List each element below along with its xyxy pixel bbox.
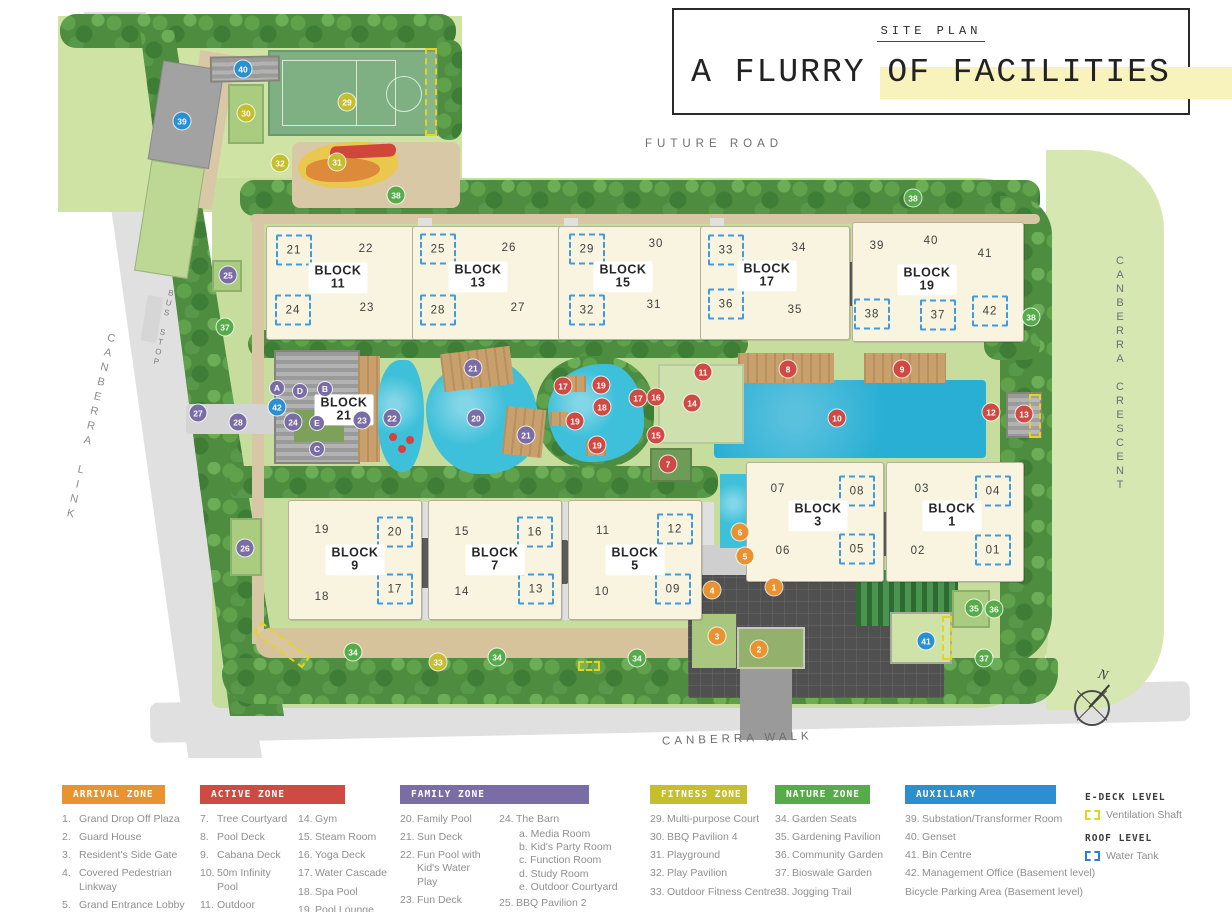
legend-item: 2.Guard House	[62, 831, 200, 844]
marker-aux-39: 39	[174, 113, 191, 130]
legend-item: 7.Tree Courtyard	[200, 813, 292, 826]
block-number: 9	[332, 560, 379, 573]
marker-nature-34: 34	[489, 649, 506, 666]
legend-item: 1.Grand Drop Off Plaza	[62, 813, 200, 826]
legend-zone: FAMILY ZONE20.Family Pool21.Sun Deck22.F…	[400, 785, 652, 912]
legend-item: 14.Gym	[298, 813, 412, 826]
unit-number: 22	[359, 243, 374, 255]
legend-item: 17.Water Cascade	[298, 867, 412, 880]
legend-item: 25.BBQ Pavilion 2	[499, 897, 652, 910]
marker-family-22: 22	[384, 410, 401, 427]
legend-item: 42.Management Office (Basement level)	[905, 867, 1110, 880]
marker-aux-41: 41	[918, 633, 935, 650]
water-tank-label: Water Tank	[1106, 850, 1159, 862]
marker-nature-38: 38	[388, 187, 405, 204]
marker-family-28: 28	[230, 414, 247, 431]
unit-number: 11	[596, 525, 610, 537]
ventilation-shaft-bin-centre	[942, 616, 952, 660]
legend-zone: ARRIVAL ZONE1.Grand Drop Off Plaza2.Guar…	[62, 785, 200, 912]
legend-item: 32.Play Pavilion	[650, 867, 778, 880]
block-number: 19	[904, 280, 951, 293]
block-number: 11	[315, 278, 362, 291]
legend-subitem: b. Kid's Party Room	[499, 841, 652, 854]
block-number: 17	[744, 276, 791, 289]
legend-levels: E-DECK LEVEL Ventilation Shaft ROOF LEVE…	[1085, 792, 1182, 874]
legend-item: 11.Outdoor Shower	[200, 899, 292, 912]
block-number: 5	[612, 560, 659, 573]
legend-item: 20.Family Pool	[400, 813, 493, 826]
legend-item: Bicycle Parking Area (Basement level)	[905, 886, 1110, 899]
legend-zone: ACTIVE ZONE7.Tree Courtyard8.Pool Deck9.…	[200, 785, 412, 912]
unit-number-water-tank: 20	[377, 517, 413, 548]
marker-arrival-5: 5	[737, 548, 754, 565]
unit-number: 30	[649, 238, 664, 250]
block-label: BLOCK13	[449, 261, 508, 292]
unit-number-water-tank: 09	[655, 574, 691, 605]
legend-item: 9.Cabana Deck	[200, 849, 292, 862]
legend-item: 33.Outdoor Fitness Centre	[650, 886, 778, 899]
legend-zone: NATURE ZONE34.Garden Seats35.Gardening P…	[775, 785, 897, 904]
unit-number-water-tank: 28	[420, 295, 456, 326]
canberra-crescent-label: CANBERRA CRESCENT	[1114, 255, 1126, 485]
marker-family-20: 20	[468, 410, 485, 427]
legend-item: 19.Pool Lounge	[298, 904, 412, 912]
block-number: 15	[600, 277, 647, 290]
block-label: BLOCK7	[466, 544, 525, 575]
block-number: 7	[472, 560, 519, 573]
unit-number: 07	[771, 483, 786, 495]
marker-active-16: 16	[648, 389, 665, 406]
marker-active-17: 17	[630, 390, 647, 407]
marker-active-13: 13	[1016, 406, 1033, 423]
unit-number-water-tank: 32	[569, 295, 605, 326]
marker-active-17: 17	[555, 378, 572, 395]
legend-zone-header: ARRIVAL ZONE	[62, 785, 165, 804]
unit-number: 31	[647, 299, 662, 311]
legend-item: 24.The Barn	[499, 813, 652, 826]
unit-number: 27	[511, 302, 526, 314]
legend-item: 10.50m Infinity Pool	[200, 867, 292, 893]
block-number: 1	[929, 516, 976, 529]
unit-number: 41	[978, 248, 993, 260]
marker-nature-37: 37	[976, 650, 993, 667]
compass: N	[1072, 684, 1112, 724]
unit-number: 34	[792, 242, 807, 254]
legend-subitem: d. Study Room	[499, 868, 652, 881]
unit-number-water-tank: 21	[276, 235, 312, 266]
unit-number: 39	[870, 240, 885, 252]
marker-nature-38: 38	[905, 190, 922, 207]
marker-arrival-4: 4	[704, 582, 721, 599]
legend-item: 30.BBQ Pavilion 4	[650, 831, 778, 844]
spa-deck-2	[550, 412, 568, 426]
unit-number-water-tank: 29	[569, 234, 605, 265]
flower-float-1	[389, 433, 397, 441]
marker-active-8: 8	[780, 361, 797, 378]
legend-zone-header: ACTIVE ZONE	[200, 785, 345, 804]
legend-subitem: a. Media Room	[499, 828, 652, 841]
unit-number-water-tank: 17	[377, 574, 413, 605]
marker-family-25: 25	[220, 267, 237, 284]
marker-family-24: 24	[285, 414, 302, 431]
marker-nature-37: 37	[217, 319, 234, 336]
unit-number: 03	[915, 483, 930, 495]
legend-item: 16.Yoga Deck	[298, 849, 412, 862]
legend-zone-header: AUXILLARY	[905, 785, 1056, 804]
legend-zone: AUXILLARY39.Substation/Transformer Room4…	[905, 785, 1110, 904]
marker-active-18: 18	[594, 399, 611, 416]
unit-number: 23	[360, 302, 375, 314]
legend-item: 36.Community Garden	[775, 849, 897, 862]
page-title: A FLURRY OF FACILITIES	[674, 54, 1188, 91]
legend-zone: FITNESS ZONE29.Multi-purpose Court30.BBQ…	[650, 785, 778, 904]
barn-room-marker-D: D	[293, 384, 307, 398]
marker-fitness-31: 31	[329, 154, 346, 171]
legend-item: 4.Covered Pedestrian Linkway	[62, 867, 200, 893]
legend-item: 39.Substation/Transformer Room	[905, 813, 1110, 826]
title-box: SITE PLAN A FLURRY OF FACILITIES	[672, 8, 1190, 115]
block-label: BLOCK5	[606, 544, 665, 575]
block-label: BLOCK19	[898, 264, 957, 295]
marker-family-27: 27	[190, 405, 207, 422]
legend-item: 35.Gardening Pavilion	[775, 831, 897, 844]
compass-ring	[1074, 690, 1110, 726]
unit-number-water-tank: 37	[920, 300, 956, 331]
legend-zone-header: NATURE ZONE	[775, 785, 870, 804]
marker-active-19: 19	[589, 437, 606, 454]
marker-nature-38: 38	[1023, 309, 1040, 326]
marker-fitness-32: 32	[272, 155, 289, 172]
marker-nature-34: 34	[345, 644, 362, 661]
marker-active-14: 14	[684, 395, 701, 412]
block-label: BLOCK15	[594, 261, 653, 292]
unit-number-water-tank: 16	[517, 517, 553, 548]
ventilation-shaft-swatch	[1085, 810, 1100, 820]
legend-item: 31.Playground	[650, 849, 778, 862]
marker-nature-35: 35	[966, 600, 983, 617]
block-label: BLOCK1	[923, 500, 982, 531]
block-label: BLOCK9	[326, 544, 385, 575]
marker-nature-36: 36	[986, 601, 1003, 618]
barn-room-marker-A: A	[270, 381, 284, 395]
marker-active-19: 19	[593, 377, 610, 394]
block-label: BLOCK3	[789, 500, 848, 531]
block-number: 3	[795, 516, 842, 529]
site-plan-eyebrow: SITE PLAN	[674, 24, 1188, 38]
marker-arrival-2: 2	[751, 641, 768, 658]
legend-subitem: c. Function Room	[499, 854, 652, 867]
site-plan-page: BLOCK1121222423BLOCK1325262827BLOCK15293…	[0, 0, 1232, 912]
marker-fitness-30: 30	[238, 105, 255, 122]
legend-item: 21.Sun Deck	[400, 831, 493, 844]
marker-family-21: 21	[465, 360, 482, 377]
ventilation-shaft-court	[425, 48, 437, 136]
future-road-label: FUTURE ROAD	[645, 138, 783, 150]
marker-fitness-33: 33	[430, 654, 447, 671]
marker-active-12: 12	[983, 404, 1000, 421]
barn-room-marker-E: E	[310, 416, 324, 430]
legend-item: 34.Garden Seats	[775, 813, 897, 826]
water-tank-swatch	[1085, 851, 1100, 861]
e-deck-level-title: E-DECK LEVEL	[1085, 792, 1182, 803]
flower-float-3	[406, 436, 414, 444]
marker-arrival-1: 1	[766, 579, 783, 596]
legend-item: 3.Resident's Side Gate	[62, 849, 200, 862]
legend-item: 41.Bin Centre	[905, 849, 1110, 862]
marker-family-26: 26	[237, 540, 254, 557]
marker-active-10: 10	[829, 410, 846, 427]
unit-number-water-tank: 24	[275, 295, 311, 326]
legend-zone-header: FAMILY ZONE	[400, 785, 589, 804]
unit-number: 26	[502, 242, 517, 254]
block-label: BLOCK17	[738, 260, 797, 291]
unit-number: 40	[924, 235, 939, 247]
unit-number: 06	[776, 545, 791, 557]
legend-item: 15.Steam Room	[298, 831, 412, 844]
marker-active-15: 15	[648, 427, 665, 444]
unit-number: 35	[788, 304, 803, 316]
block-number: 13	[455, 277, 502, 290]
unit-number: 19	[315, 524, 330, 536]
block-label: BLOCK11	[309, 262, 368, 293]
legend-item: 8.Pool Deck	[200, 831, 292, 844]
unit-number: 10	[595, 586, 610, 598]
legend-item: 37.Bioswale Garden	[775, 867, 897, 880]
marker-fitness-29: 29	[339, 94, 356, 111]
unit-number: 14	[455, 586, 470, 598]
legend-subitem: e. Outdoor Courtyard	[499, 881, 652, 894]
legend: ARRIVAL ZONE1.Grand Drop Off Plaza2.Guar…	[0, 780, 1232, 912]
legend-item: 29.Multi-purpose Court	[650, 813, 778, 826]
marker-aux-42: 42	[269, 399, 286, 416]
marker-active-19: 19	[567, 413, 584, 430]
guard-house	[737, 627, 805, 669]
legend-zone-header: FITNESS ZONE	[650, 785, 747, 804]
barn-room-marker-C: C	[310, 442, 324, 456]
ventilation-shaft-label: Ventilation Shaft	[1106, 809, 1182, 821]
ventilation-shaft-south	[578, 661, 600, 671]
legend-item: 23.Fun Deck	[400, 894, 493, 907]
marker-active-9: 9	[894, 361, 911, 378]
unit-number-water-tank: 13	[518, 574, 554, 605]
marker-family-23: 23	[354, 412, 371, 429]
legend-item: 5.Grand Entrance Lobby	[62, 899, 200, 912]
marker-arrival-3: 3	[709, 628, 726, 645]
marker-aux-40: 40	[235, 61, 252, 78]
unit-number: 18	[315, 591, 330, 603]
legend-item: 22.Fun Pool with Kid's Water Play	[400, 849, 493, 888]
unit-number-water-tank: 12	[657, 514, 693, 545]
legend-item: 40.Genset	[905, 831, 1110, 844]
unit-number: 02	[911, 545, 926, 557]
marker-active-11: 11	[695, 364, 712, 381]
roof-level-title: ROOF LEVEL	[1085, 833, 1182, 844]
flower-float-2	[398, 445, 406, 453]
marker-family-21: 21	[518, 427, 535, 444]
unit-number-water-tank: 36	[708, 289, 744, 320]
unit-number-water-tank: 25	[420, 234, 456, 265]
unit-number-water-tank: 38	[854, 299, 890, 330]
legend-item: 18.Spa Pool	[298, 886, 412, 899]
marker-arrival-6: 6	[732, 524, 749, 541]
unit-number-water-tank: 05	[839, 534, 875, 565]
marker-active-7: 7	[660, 456, 677, 473]
legend-item: 38.Jogging Trail	[775, 886, 897, 899]
marker-nature-34: 34	[629, 650, 646, 667]
unit-number-water-tank: 01	[975, 535, 1011, 566]
barn-room-marker-B: B	[318, 382, 332, 396]
south-entry-road	[740, 660, 792, 740]
unit-number: 15	[455, 526, 470, 538]
unit-number-water-tank: 42	[972, 296, 1008, 327]
